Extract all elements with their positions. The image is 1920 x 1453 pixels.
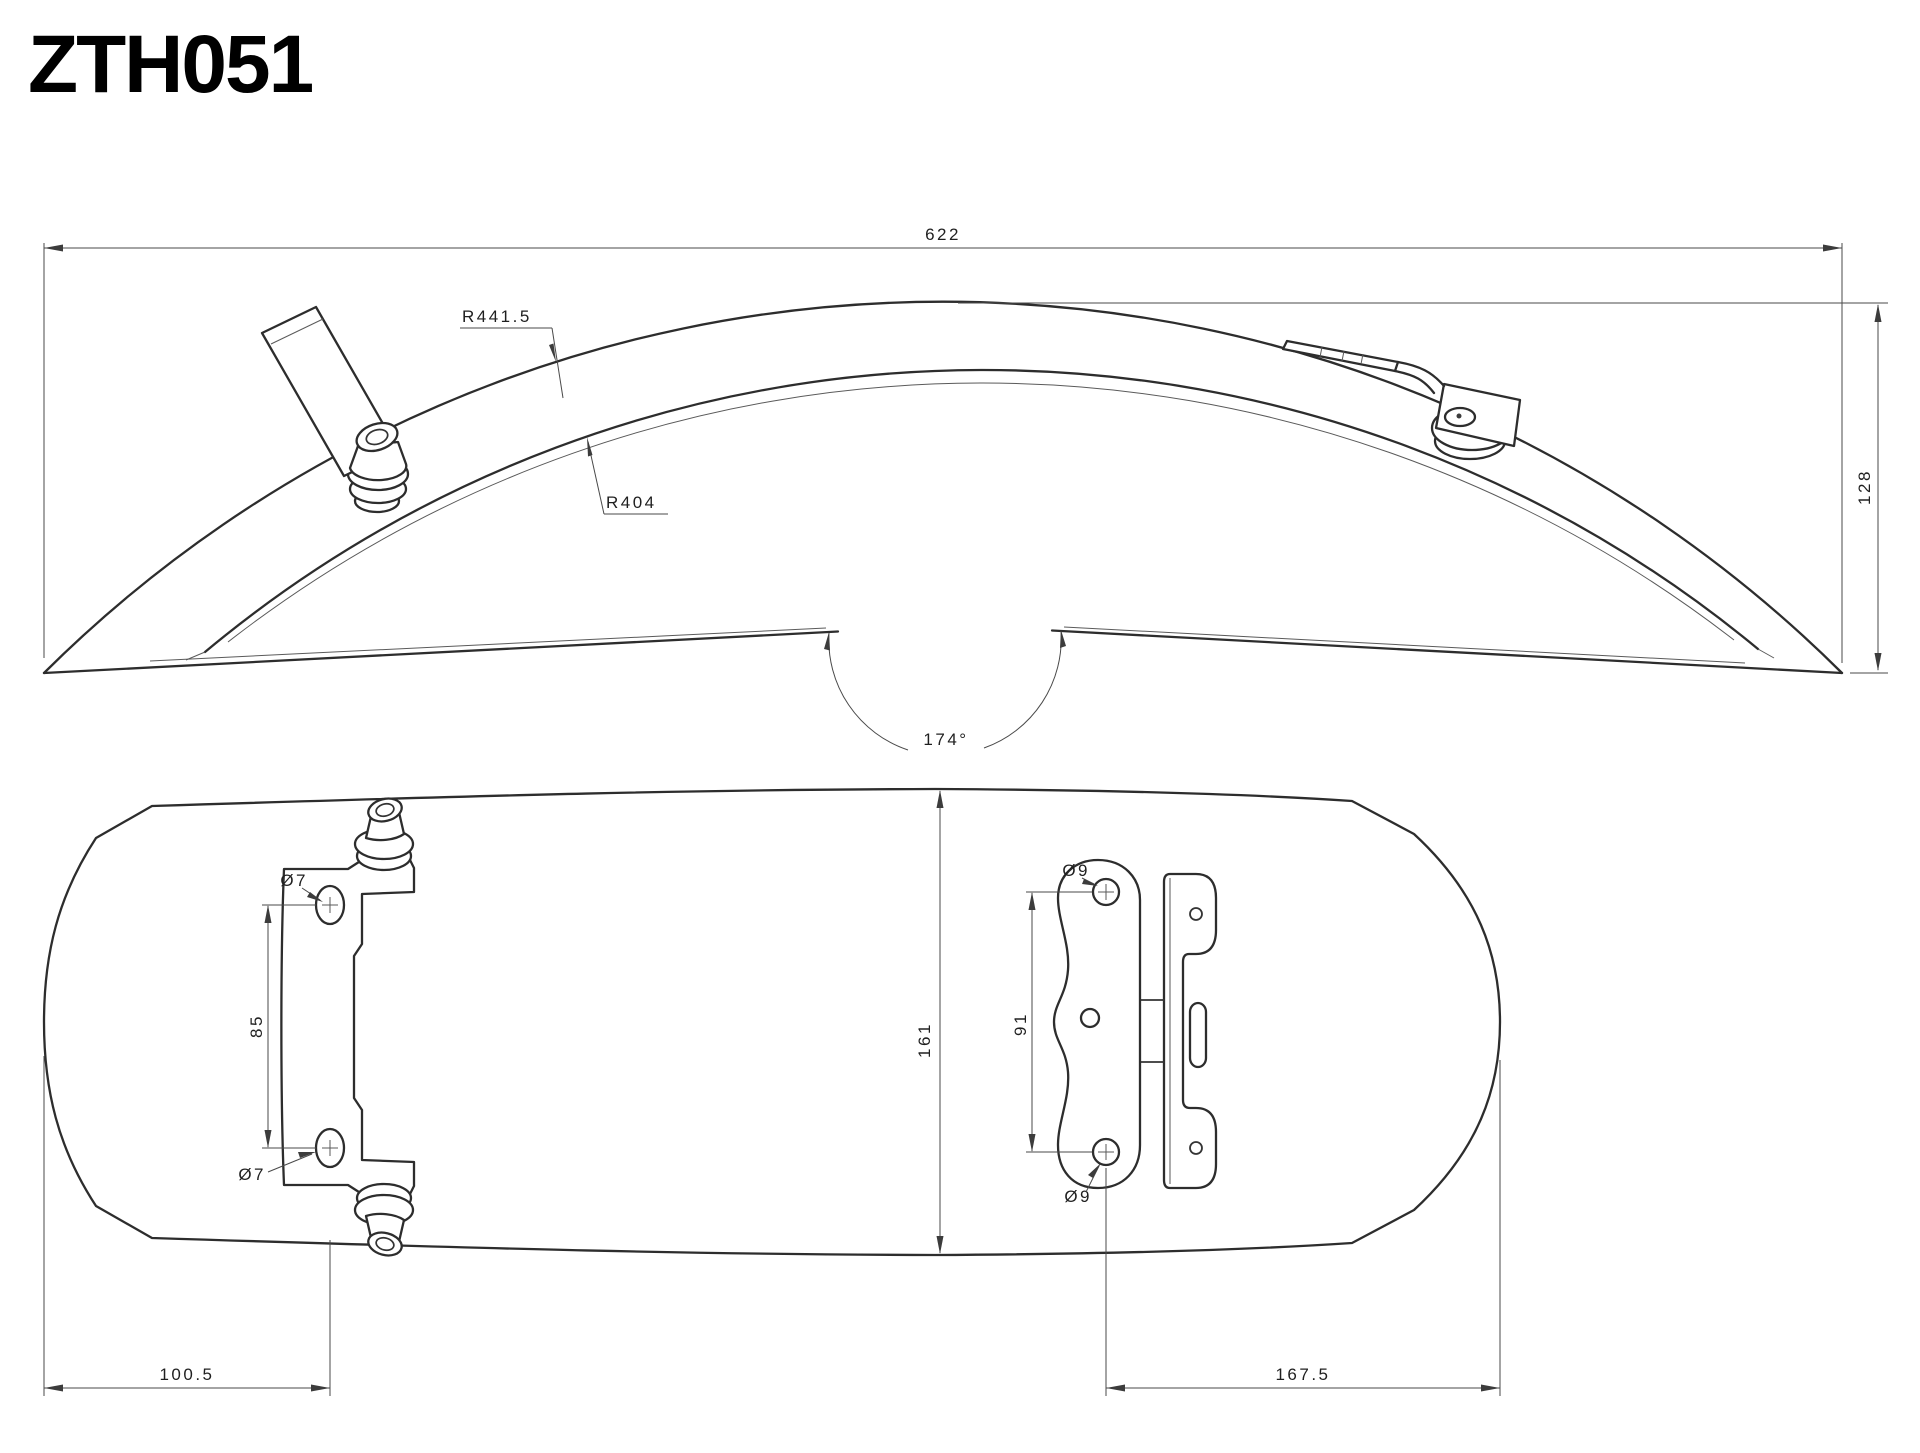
dim-label-128: 128 <box>1855 469 1874 505</box>
arrow-bottom <box>1029 1134 1036 1152</box>
dim-label-r441: R441.5 <box>462 307 532 326</box>
technical-drawing-canvas: 622 128 R441.5 R404 <box>0 0 1920 1453</box>
arrow-right <box>1060 630 1066 648</box>
bracket-arm-lower <box>1395 371 1434 393</box>
angle-arc-right <box>984 631 1061 748</box>
right-tab-bottom-hole <box>1190 1142 1202 1154</box>
fender-bottom-edge-left-inner <box>150 628 826 661</box>
fender-bottom-edge-right-inner <box>1064 627 1745 663</box>
dim-label-167-5: 167.5 <box>1275 1365 1330 1384</box>
arrow-left <box>44 1385 63 1392</box>
arrow-top <box>937 790 944 808</box>
left-bracket-body <box>281 860 414 1194</box>
arrow-bottom <box>1875 653 1882 671</box>
dim-outer-radius: R441.5 <box>460 307 563 398</box>
dim-inner-radius: R404 <box>587 437 668 514</box>
left-bracket-top-stud <box>355 795 413 870</box>
center-small-hole <box>1081 1009 1099 1027</box>
dim-label-d7-bottom: Ø7 <box>238 1165 266 1184</box>
left-bracket-bottom-stud <box>355 1184 413 1259</box>
dim-label-161: 161 <box>915 1022 934 1058</box>
dim-label-100-5: 100.5 <box>159 1365 214 1384</box>
dim-label-d7-top: Ø7 <box>280 871 308 890</box>
fender-inner-arc <box>205 370 1758 652</box>
arrow-left <box>1106 1385 1125 1392</box>
fastener-center-dot <box>1457 414 1462 419</box>
arrow-right <box>1823 245 1842 252</box>
dim-label-622: 622 <box>925 225 961 244</box>
arrow-right <box>1481 1385 1500 1392</box>
fender-right-tip-edge <box>1758 649 1774 658</box>
arrow-bottom <box>265 1130 272 1148</box>
dim-label-91: 91 <box>1011 1012 1030 1036</box>
plan-view: 161 <box>44 789 1500 1396</box>
side-view: 622 128 R441.5 R404 <box>44 225 1888 750</box>
arrow-top <box>265 905 272 923</box>
arrow-top <box>1875 304 1882 322</box>
arrow-left <box>44 245 63 252</box>
dim-label-d9-top: Ø9 <box>1062 861 1090 880</box>
dim-bend-angle: 174° <box>824 630 1066 750</box>
fender-bottom-edge-right <box>1052 631 1842 674</box>
dim-label-85: 85 <box>247 1014 266 1038</box>
right-tab-top-hole <box>1190 908 1202 920</box>
arrow-bottom <box>937 1236 944 1254</box>
bracket-tab <box>1283 341 1398 371</box>
dim-length-622: 622 <box>44 225 1842 663</box>
angle-arc-left <box>829 633 908 750</box>
plan-left-bracket: Ø7 Ø7 85 <box>44 795 414 1396</box>
arrow-left <box>824 632 830 651</box>
plan-right-bracket: Ø9 Ø9 91 <box>1011 860 1500 1396</box>
dim-height-128: 128 <box>958 303 1888 673</box>
side-left-bracket <box>262 307 408 512</box>
fender-bottom-edge-left <box>44 632 838 674</box>
dim-width-161: 161 <box>915 790 944 1254</box>
dim-label-174: 174° <box>923 730 968 749</box>
right-plate-slot <box>1190 1003 1206 1067</box>
dim-label-r404: R404 <box>606 493 657 512</box>
arrow-right <box>311 1385 330 1392</box>
arrow-top <box>1029 892 1036 910</box>
drawing-sheet: ZTH051 <box>0 0 1920 1453</box>
dim-label-d9-bottom: Ø9 <box>1064 1187 1092 1206</box>
